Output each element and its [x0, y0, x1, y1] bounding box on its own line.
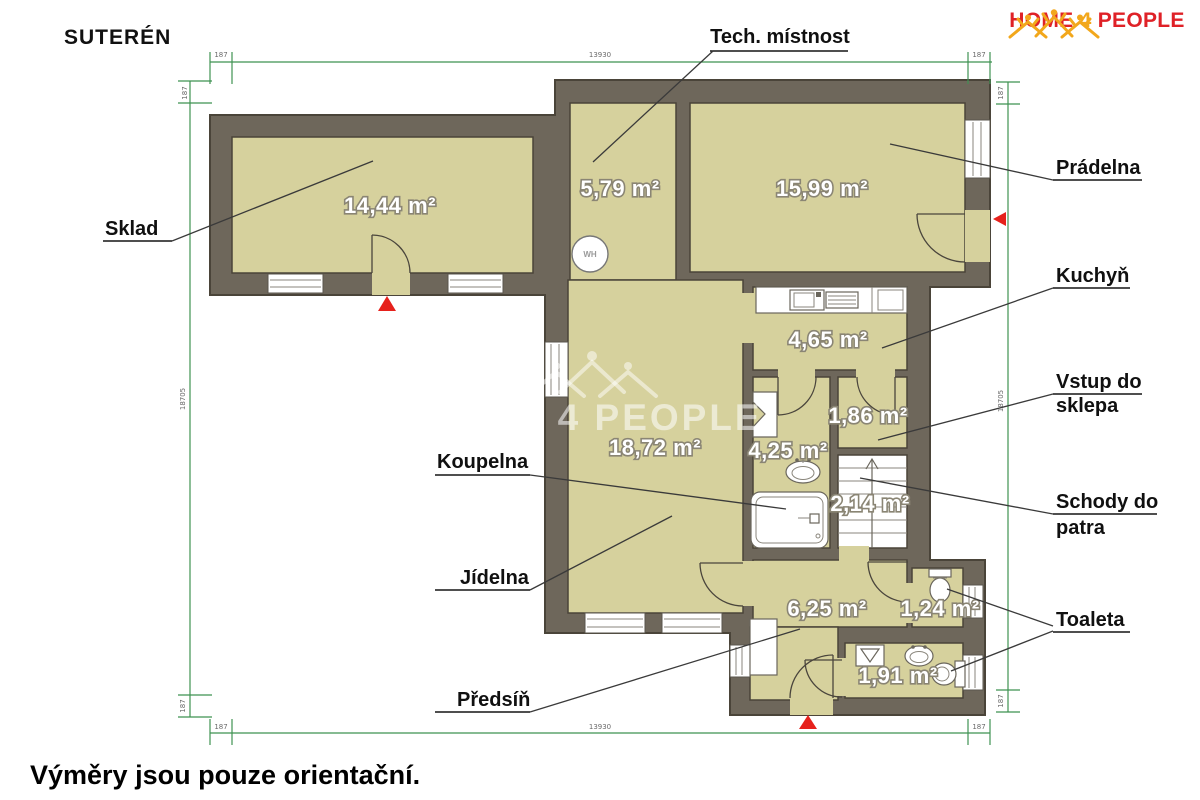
callout-tech-mistnost: Tech. místnost [710, 26, 850, 48]
area-label-jidelna: 18,72 m² [609, 435, 701, 460]
callout-toaleta: Toaleta [1056, 609, 1125, 631]
callout-kuchyn: Kuchyň [1056, 265, 1129, 287]
kitchen-counter-icon [756, 287, 907, 313]
entrance-arrow-icon [993, 212, 1006, 226]
callout-jidelna: Jídelna [460, 567, 530, 589]
dimension-label: 187 [214, 723, 227, 731]
floorplan-drawing: WH [0, 0, 1200, 800]
callout-schody-line1: Schody do [1056, 491, 1158, 513]
window [965, 120, 990, 178]
entrance-arrow-icon [378, 296, 396, 311]
dimension-label: 187 [972, 51, 985, 59]
watermark-text: HOME 4 PEOPLE [421, 397, 762, 438]
callout-koupelna: Koupelna [437, 451, 529, 473]
area-label-vstup: 1,86 m² [828, 403, 907, 428]
dimension-label: 187 [181, 86, 189, 99]
callout-predsin: Předsíň [457, 689, 530, 711]
area-label-predsin: 6,25 m² [787, 596, 866, 621]
window [662, 613, 722, 633]
dimension-label: 187 [179, 699, 187, 712]
area-label-pradelna: 15,99 m² [776, 176, 868, 201]
window [268, 274, 323, 293]
area-label-kuchyn: 4,65 m² [788, 327, 867, 352]
dimension-label: 187 [214, 51, 227, 59]
window [448, 274, 503, 293]
dimension-label: 187 [997, 86, 1005, 99]
entrance-arrow-icon [799, 715, 817, 729]
floorplan-page: SUTERÉN HOME 4 PEOPLE [0, 0, 1200, 800]
dimension-label: 18705 [179, 388, 187, 410]
footer-note: Výměry jsou pouze orientační. [30, 760, 420, 791]
callout-vstup-line2: sklepa [1056, 395, 1119, 417]
water-heater-label: WH [583, 250, 597, 259]
callout-pradelna: Prádelna [1056, 157, 1141, 179]
cabinet-icon [750, 619, 777, 675]
area-label-sklad: 14,44 m² [344, 193, 436, 218]
water-heater-icon: WH [572, 236, 608, 272]
callout-vstup-line1: Vstup do [1056, 371, 1142, 393]
window [585, 613, 645, 633]
dimension-label: 13930 [589, 723, 611, 731]
callout-schody-line2: patra [1056, 517, 1106, 539]
callout-sklad: Sklad [105, 218, 158, 240]
bathtub-icon [751, 492, 828, 548]
dimension-label: 13930 [589, 51, 611, 59]
area-label-tech: 5,79 m² [580, 176, 659, 201]
area-label-toaleta1: 1,24 m² [900, 596, 979, 621]
area-label-schody: 2,14 m² [830, 491, 909, 516]
dimension-label: 187 [972, 723, 985, 731]
area-label-toaleta2: 1,91 m² [858, 663, 937, 688]
area-label-koupelna: 4,25 m² [748, 438, 827, 463]
dimension-label: 187 [997, 694, 1005, 707]
